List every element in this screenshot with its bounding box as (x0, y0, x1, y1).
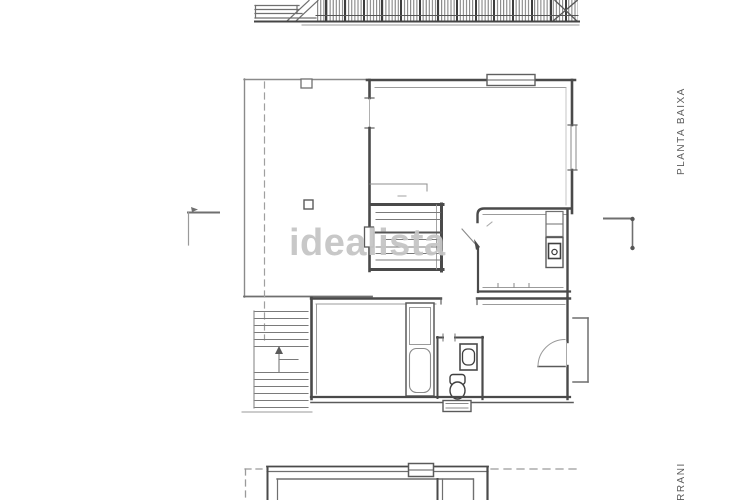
floorplan-page: idealista PLANTA BAIXA PLANTA SOTERRANI (0, 0, 750, 500)
column (304, 200, 313, 209)
roof-hatching (316, 0, 578, 21)
terrace-notch (301, 79, 312, 88)
shower-bath-enclosure (406, 303, 434, 396)
label-planta-soterrani: PLANTA SOTERRANI (676, 455, 692, 500)
kitchen-sink (549, 244, 561, 259)
section-arrow-left (191, 207, 198, 212)
entrance-hall (538, 298, 588, 399)
label-planta-baixa: PLANTA BAIXA (676, 73, 692, 175)
front-door-swing (538, 340, 565, 367)
stair-direction-arrow (275, 346, 283, 354)
bottom-exterior-wall (311, 397, 573, 412)
kitchen (462, 209, 570, 299)
idealista-watermark: idealista (289, 224, 446, 262)
basement-plan-strip (245, 464, 576, 500)
wall-vent (443, 401, 471, 412)
roof-section-strip (255, 0, 579, 25)
exterior-stairs (242, 311, 312, 412)
section-dot-bottom (630, 246, 634, 250)
terrace (244, 79, 372, 340)
bottom-band-wall (311, 298, 570, 399)
roof-ledge (255, 1, 318, 22)
bathroom (406, 303, 483, 399)
section-dot-top (630, 217, 634, 221)
